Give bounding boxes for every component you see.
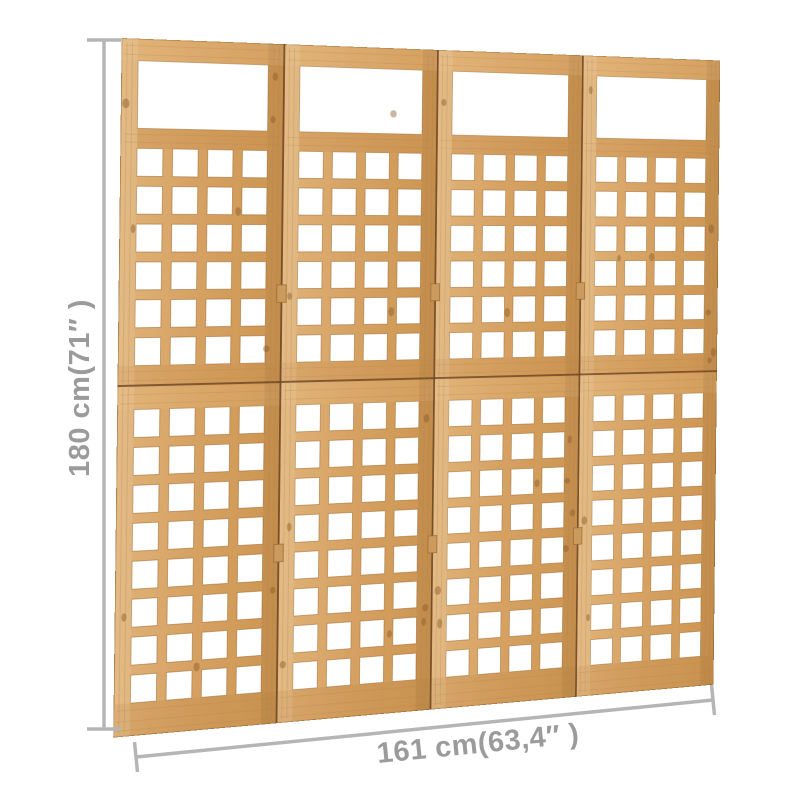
width-dimension-right-cap: [712, 685, 715, 715]
width-dimension-label: 161 cm(63,4″ ): [375, 718, 580, 770]
product-image: 180 cm(71″ ) 161 cm(63,4″ ): [0, 0, 800, 800]
height-dimension-label: 180 cm(71″ ): [64, 299, 96, 477]
width-dimension-left-cap: [135, 742, 138, 772]
trellis-room-divider: [113, 38, 720, 738]
trellis-illustration: [113, 38, 720, 738]
height-dimension: 180 cm(71″ ): [64, 40, 121, 729]
